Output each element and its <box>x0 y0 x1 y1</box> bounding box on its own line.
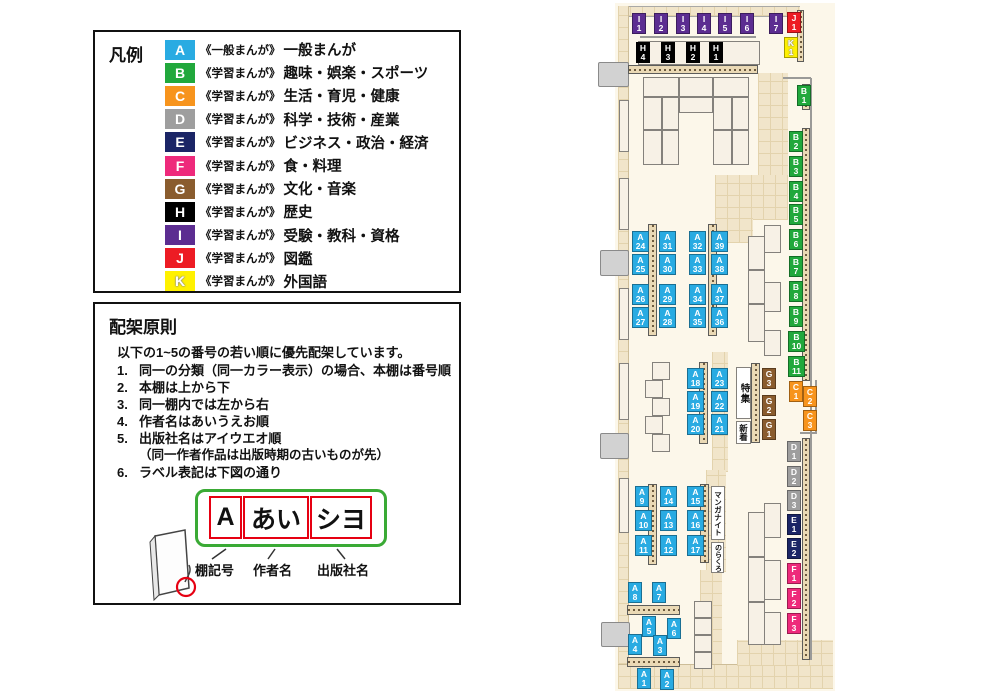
label-publisher-name: シヨ <box>310 496 372 539</box>
legend-swatch-D: D <box>165 109 195 129</box>
shelf-label-A30: A30 <box>659 254 676 275</box>
shelf-strip <box>627 605 680 615</box>
legend-row-F: F《学習まんが》食・料理 <box>165 154 455 177</box>
legend-row-H: H《学習まんが》歴史 <box>165 200 455 223</box>
legend-swatch-K: K <box>165 271 195 291</box>
principle-item: 1.同一の分類（同一カラー表示）の場合、本棚は番号順 <box>117 362 451 379</box>
legend-category-name: 趣味・娯楽・スポーツ <box>284 62 429 83</box>
shelf-label-A37: A37 <box>711 284 728 305</box>
shelf-label-A7: A7 <box>652 582 666 603</box>
legend-series: 《学習まんが》 <box>200 111 281 127</box>
shelf-label-E1: E1 <box>787 514 801 535</box>
shelf-label-B6: B6 <box>789 229 803 250</box>
shelf-label-A6: A6 <box>667 618 681 639</box>
legend-row-E: E《学習まんが》ビジネス・政治・経済 <box>165 131 455 154</box>
table-cell <box>748 270 765 304</box>
legend-row-C: C《学習まんが》生活・育児・健康 <box>165 84 455 107</box>
table-cell <box>694 618 712 635</box>
shelf-label-K1: K1 <box>784 37 798 58</box>
shelf-label-B4: B4 <box>789 181 803 202</box>
table-cell <box>662 130 679 165</box>
table-cell <box>694 652 712 669</box>
shelf-label-A27: A27 <box>632 307 649 328</box>
wall-shelf <box>619 100 629 152</box>
wall-line-right <box>810 78 812 660</box>
shelf-strip <box>648 224 657 336</box>
table-cell <box>748 557 765 602</box>
shelf-label-A32: A32 <box>689 231 706 252</box>
label-shelf-code: A <box>209 496 242 539</box>
shelf-label-A39: A39 <box>711 231 728 252</box>
legend-row-J: J《学習まんが》図鑑 <box>165 247 455 270</box>
label-example-frame: A あい シヨ <box>195 489 387 547</box>
table-cell <box>764 225 781 253</box>
shelf-label-I7: I7 <box>769 13 783 34</box>
shelf-label-I4: I4 <box>697 13 711 34</box>
table-cell <box>764 503 781 538</box>
shelf-label-A31: A31 <box>659 231 676 252</box>
legend-category-name: ビジネス・政治・経済 <box>284 132 429 153</box>
shelf-label-A24: A24 <box>632 231 649 252</box>
legend-row-K: K《学習まんが》外国語 <box>165 270 455 293</box>
table-cell <box>713 97 732 130</box>
table-cell <box>643 97 662 130</box>
shelf-label-B7: B7 <box>789 256 803 277</box>
shelf-label-A17: A17 <box>687 535 704 556</box>
shelf-strip <box>627 657 680 667</box>
seat <box>652 434 670 452</box>
shelf-label-A23: A23 <box>711 368 728 389</box>
shelf-label-F3: F3 <box>787 613 801 634</box>
legend-swatch-G: G <box>165 179 195 199</box>
shelf-label-A9: A9 <box>635 486 649 507</box>
shelf-label-A16: A16 <box>687 510 704 531</box>
table-cell <box>764 330 781 356</box>
legend-series: 《学習まんが》 <box>200 204 281 220</box>
table-cell <box>764 612 781 645</box>
shelf-label-H4: H4 <box>636 42 650 63</box>
legend-category-name: 文化・音楽 <box>284 178 357 199</box>
caption-shelf-code: 棚記号 <box>195 560 234 579</box>
legend-series: 《学習まんが》 <box>200 88 281 104</box>
legend-series: 《学習まんが》 <box>200 134 281 150</box>
shelf-label-G2: G2 <box>762 395 776 416</box>
caption-publisher: 出版社名 <box>317 560 369 579</box>
shelf-label-A3: A3 <box>653 635 667 656</box>
legend-series: 《学習まんが》 <box>200 273 281 289</box>
seat <box>645 416 663 434</box>
shelf-label-H3: H3 <box>661 42 675 63</box>
principle-item: 2.本棚は上から下 <box>117 379 451 396</box>
principles-title: 配架原則 <box>109 313 177 338</box>
shelf-label-A33: A33 <box>689 254 706 275</box>
legend-category-name: 生活・育児・健康 <box>284 85 400 106</box>
table-cell <box>764 282 781 312</box>
legend-category-name: 図鑑 <box>284 248 313 269</box>
shelf-label-B11: B11 <box>788 356 805 377</box>
shelf-label-A15: A15 <box>687 486 704 507</box>
shelf-strip <box>802 438 810 660</box>
shelf-label-C3: C3 <box>803 410 817 431</box>
table-cell <box>732 97 749 130</box>
legend-row-G: G《学習まんが》文化・音楽 <box>165 177 455 200</box>
legend-row-D: D《学習まんが》科学・技術・産業 <box>165 108 455 131</box>
door-2 <box>600 250 629 276</box>
table-cell <box>643 77 679 97</box>
legend-rows: A《一般まんが》一般まんがB《学習まんが》趣味・娯楽・スポーツC《学習まんが》生… <box>165 38 455 293</box>
pillar-top-right <box>758 73 788 178</box>
legend-swatch-H: H <box>165 202 195 222</box>
table-cell <box>643 130 662 165</box>
legend-swatch-J: J <box>165 248 195 268</box>
legend-series: 《学習まんが》 <box>200 250 281 266</box>
shelf-label-A26: A26 <box>632 284 649 305</box>
table-cell <box>694 635 712 652</box>
shelf-label-I2: I2 <box>654 13 668 34</box>
label-author-name: あい <box>243 496 309 539</box>
shelf-label-A38: A38 <box>711 254 728 275</box>
wall-line-niche-bottom <box>800 432 817 434</box>
legend-series: 《一般まんが》 <box>200 42 281 58</box>
table-cell <box>713 130 732 165</box>
legend-category-name: 科学・技術・産業 <box>284 109 400 130</box>
legend-swatch-E: E <box>165 132 195 152</box>
shelf-label-G3: G3 <box>762 368 776 389</box>
caption-author: 作者名 <box>253 560 292 579</box>
door-1 <box>598 62 629 87</box>
principles-intro: 以下の1~5の番号の若い順に優先配架しています。 <box>117 342 410 361</box>
legend-category-name: 一般まんが <box>284 39 357 60</box>
legend-series: 《学習まんが》 <box>200 158 281 174</box>
shelf-label-B2: B2 <box>789 131 803 152</box>
shelf-label-F1: F1 <box>787 563 801 584</box>
legend-category-name: 食・料理 <box>284 155 342 176</box>
shelf-label-D1: D1 <box>787 441 801 462</box>
shelf-label-A2: A2 <box>660 669 674 690</box>
area-manga-night: マンガナイト <box>711 486 725 540</box>
shelf-label-A1: A1 <box>637 668 651 689</box>
area-norakuro: のらくろ <box>711 542 724 573</box>
shelf-strip <box>628 65 758 74</box>
shelf-label-A20: A20 <box>687 414 704 435</box>
shelf-label-A34: A34 <box>689 284 706 305</box>
legend-swatch-C: C <box>165 86 195 106</box>
shelf-strip <box>751 363 760 443</box>
table-cell <box>713 77 749 97</box>
shelf-label-A18: A18 <box>687 368 704 389</box>
legend-title: 凡例 <box>109 41 143 66</box>
shelf-label-A14: A14 <box>660 486 677 507</box>
shelf-label-A19: A19 <box>687 391 704 412</box>
walkway-upper <box>715 175 788 220</box>
door-3 <box>600 433 629 459</box>
shelf-label-A28: A28 <box>659 307 676 328</box>
shelf-label-B3: B3 <box>789 156 803 177</box>
principles-list: 1.同一の分類（同一カラー表示）の場合、本棚は番号順2.本棚は上から下3.同一棚… <box>117 362 451 481</box>
shelf-label-D2: D2 <box>787 466 801 487</box>
wall-shelf <box>619 178 629 230</box>
shelf-label-A36: A36 <box>711 307 728 328</box>
shelf-label-A4: A4 <box>628 634 642 655</box>
legend-row-I: I《学習まんが》受験・教科・資格 <box>165 224 455 247</box>
shelf-label-A11: A11 <box>635 535 652 556</box>
shelf-label-A29: A29 <box>659 284 676 305</box>
principles-box: 配架原則 以下の1~5の番号の若い順に優先配架しています。 1.同一の分類（同一… <box>93 302 461 605</box>
table-cell <box>662 97 679 130</box>
shelf-label-I3: I3 <box>676 13 690 34</box>
shelf-line-i-row <box>640 36 756 38</box>
legend-swatch-F: F <box>165 156 195 176</box>
shelf-label-J1: J1 <box>787 12 801 33</box>
shelf-label-A25: A25 <box>632 254 649 275</box>
principle-item: 3.同一棚内では左から右 <box>117 396 451 413</box>
table-cell <box>748 236 765 270</box>
shelf-label-B1: B1 <box>797 85 811 106</box>
legend-category-name: 歴史 <box>284 201 313 222</box>
legend-series: 《学習まんが》 <box>200 181 281 197</box>
area-new-arrivals: 新着 <box>736 421 751 444</box>
seat <box>652 362 670 380</box>
shelf-label-E2: E2 <box>787 538 801 559</box>
shelf-label-I6: I6 <box>740 13 754 34</box>
shelf-label-F2: F2 <box>787 588 801 609</box>
table-cell <box>748 602 765 645</box>
shelf-label-H2: H2 <box>686 42 700 63</box>
shelf-label-I5: I5 <box>718 13 732 34</box>
shelf-label-B9: B9 <box>789 306 803 327</box>
legend-row-A: A《一般まんが》一般まんが <box>165 38 455 61</box>
principle-item: 4.作者名はあいうえお順 <box>117 413 451 430</box>
shelf-label-D3: D3 <box>787 490 801 511</box>
shelf-label-I1: I1 <box>632 13 646 34</box>
library-manga-floor-guide: 凡例 A《一般まんが》一般まんがB《学習まんが》趣味・娯楽・スポーツC《学習まん… <box>0 0 1000 700</box>
wall-line-corner <box>783 77 811 79</box>
shelf-label-A22: A22 <box>711 391 728 412</box>
shelf-label-B5: B5 <box>789 204 803 225</box>
legend-series: 《学習まんが》 <box>200 65 281 81</box>
seat <box>652 398 670 416</box>
legend-series: 《学習まんが》 <box>200 227 281 243</box>
shelf-label-C1: C1 <box>789 381 803 402</box>
table-cell <box>764 560 781 600</box>
shelf-label-A21: A21 <box>711 414 728 435</box>
wall-shelf <box>619 288 629 340</box>
legend-category-name: 受験・教科・資格 <box>284 225 400 246</box>
shelf-label-A35: A35 <box>689 307 706 328</box>
table-cell <box>679 77 713 97</box>
table-cell <box>679 97 713 113</box>
seat <box>645 380 663 398</box>
principle-item-note: （同一作者作品は出版時期の古いものが先） <box>139 447 451 464</box>
principle-item: 6.ラベル表記は下図の通り <box>117 464 451 481</box>
legend-box: 凡例 A《一般まんが》一般まんがB《学習まんが》趣味・娯楽・スポーツC《学習まん… <box>93 30 461 293</box>
shelf-label-A13: A13 <box>660 510 677 531</box>
table-cell <box>732 130 749 165</box>
shelf-label-C2: C2 <box>803 386 817 407</box>
shelf-label-B8: B8 <box>789 281 803 302</box>
table-cell <box>694 601 712 618</box>
legend-row-B: B《学習まんが》趣味・娯楽・スポーツ <box>165 61 455 84</box>
door-4 <box>601 622 630 647</box>
area-feature: 特集 <box>736 367 751 419</box>
principle-item: 5.出版社名はアイウエオ順 <box>117 430 451 447</box>
shelf-label-A8: A8 <box>628 582 642 603</box>
legend-category-name: 外国語 <box>284 271 328 292</box>
table-cell <box>748 304 765 342</box>
wall-shelf <box>619 363 629 420</box>
shelf-label-A10: A10 <box>635 510 652 531</box>
legend-swatch-I: I <box>165 225 195 245</box>
shelf-label-H1: H1 <box>709 42 723 63</box>
legend-swatch-B: B <box>165 63 195 83</box>
table-cell <box>748 512 765 557</box>
shelf-label-G1: G1 <box>762 419 776 440</box>
shelf-label-A12: A12 <box>660 535 677 556</box>
shelf-label-A5: A5 <box>642 616 656 637</box>
shelf-label-B10: B10 <box>788 331 805 352</box>
wall-shelf <box>619 478 629 533</box>
legend-swatch-A: A <box>165 40 195 60</box>
